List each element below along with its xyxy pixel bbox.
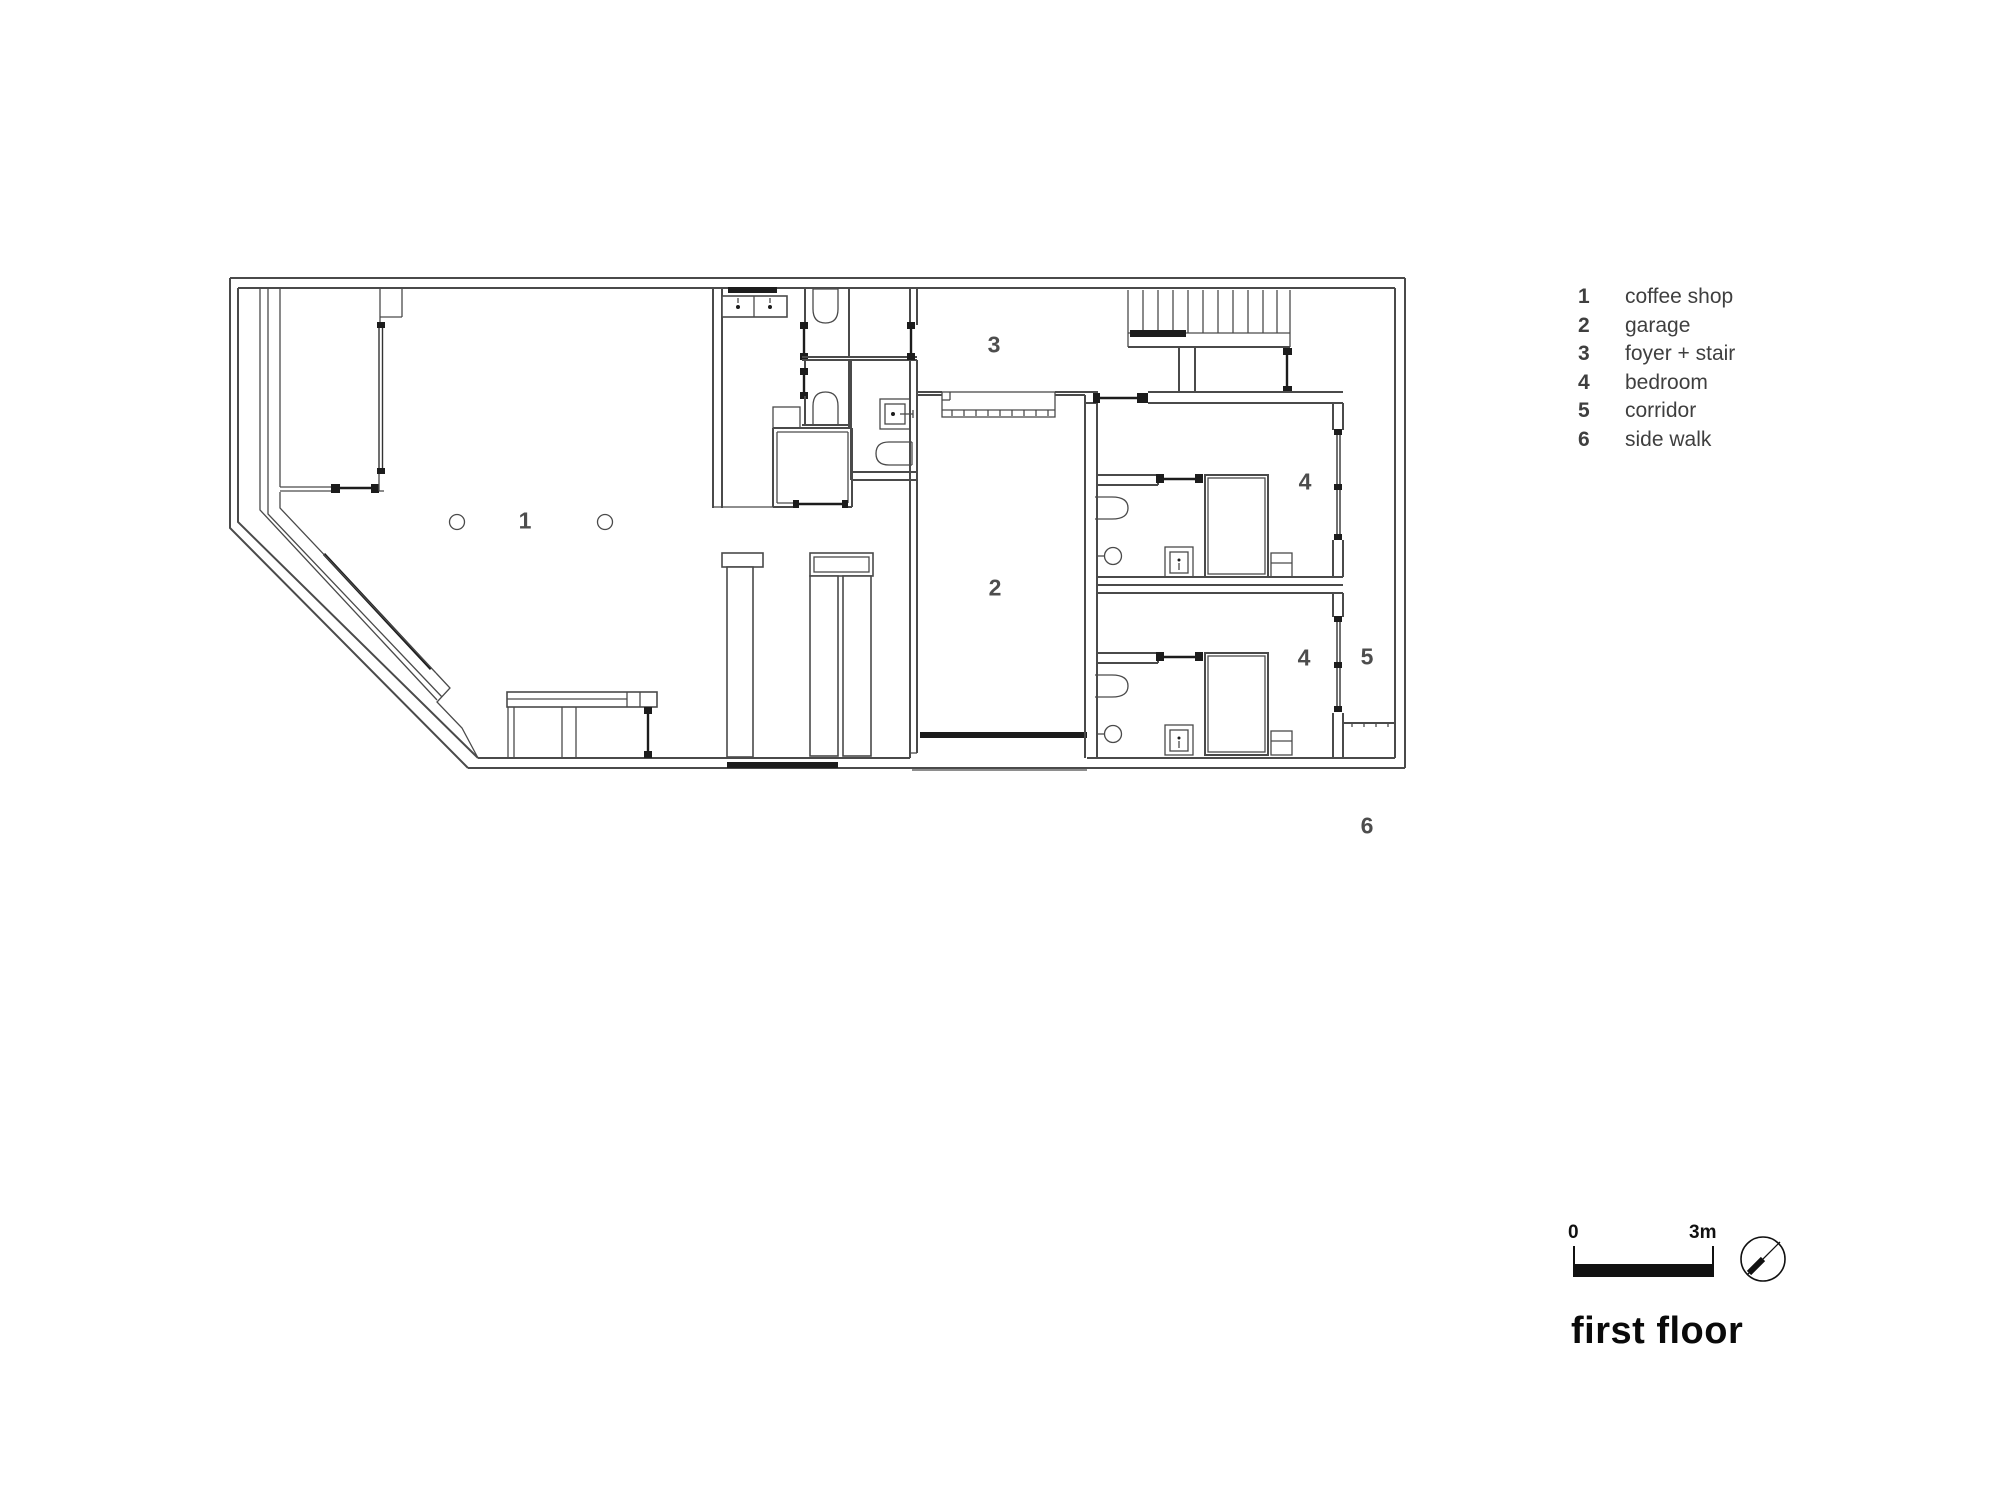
scale-end-label: 3m xyxy=(1689,1222,1716,1244)
legend: 1 coffee shop 2 garage 3 foyer + stair 4… xyxy=(1578,283,1735,455)
garage xyxy=(907,288,1087,758)
legend-item: 3 foyer + stair xyxy=(1578,340,1735,369)
garage-door xyxy=(920,732,1087,738)
toilet-icon xyxy=(813,392,838,425)
bed-icon xyxy=(1205,653,1268,755)
bedroom-block-walls xyxy=(1085,392,1343,758)
shower-icon xyxy=(1165,547,1193,577)
drawing-sheet: 1 2 3 4 4 5 6 1 coffee shop 2 garage 3 f… xyxy=(0,0,2000,1500)
legend-item-label: bedroom xyxy=(1625,369,1708,398)
bed-icon xyxy=(1205,475,1268,577)
room-label-bedroom-upper: 4 xyxy=(1299,469,1312,496)
staircase xyxy=(1128,290,1292,393)
bathtub-icon xyxy=(876,442,912,465)
north-arrow-icon xyxy=(1738,1234,1788,1284)
sink-icon xyxy=(880,399,913,429)
legend-item-number: 5 xyxy=(1578,397,1625,426)
legend-item-label: garage xyxy=(1625,312,1690,341)
drawing-title: first floor xyxy=(1571,1310,1743,1353)
angled-glazing xyxy=(260,288,478,758)
scale-bar-fill xyxy=(1573,1264,1714,1277)
legend-item-number: 1 xyxy=(1578,283,1625,312)
toilet-icon xyxy=(813,289,838,323)
entry-steps xyxy=(918,392,1085,417)
corridor-steps xyxy=(1343,723,1395,727)
bedroom-1 xyxy=(1095,474,1292,577)
room-label-coffee-shop: 1 xyxy=(519,508,532,535)
bedroom-2 xyxy=(1095,652,1292,755)
legend-item-label: corridor xyxy=(1625,397,1696,426)
legend-item: 2 garage xyxy=(1578,312,1735,341)
legend-item: 1 coffee shop xyxy=(1578,283,1735,312)
sink-counter xyxy=(722,296,787,317)
toilet-icon xyxy=(1095,675,1128,697)
legend-item-label: side walk xyxy=(1625,426,1711,455)
legend-item-label: foyer + stair xyxy=(1625,340,1735,369)
toilet-icon xyxy=(1095,497,1128,519)
legend-item: 6 side walk xyxy=(1578,426,1735,455)
legend-item-number: 6 xyxy=(1578,426,1625,455)
basin-icon xyxy=(1097,548,1122,565)
room-label-corridor: 5 xyxy=(1361,644,1374,671)
legend-item: 5 corridor xyxy=(1578,397,1735,426)
bench-seat xyxy=(507,692,657,758)
legend-item-label: coffee shop xyxy=(1625,283,1733,312)
shower-icon xyxy=(1165,725,1193,755)
legend-item: 4 bedroom xyxy=(1578,369,1735,398)
entry-recess xyxy=(380,288,402,327)
booth-tables xyxy=(722,553,873,768)
basin-icon xyxy=(1097,726,1122,743)
bathroom-block xyxy=(713,287,917,508)
legend-item-number: 2 xyxy=(1578,312,1625,341)
scale-start-label: 0 xyxy=(1568,1222,1579,1244)
room-label-garage: 2 xyxy=(989,575,1002,602)
room-label-side-walk: 6 xyxy=(1361,813,1374,840)
vestibule xyxy=(280,288,385,493)
room-label-foyer-stair: 3 xyxy=(988,332,1001,359)
legend-item-number: 3 xyxy=(1578,340,1625,369)
nightstand xyxy=(1271,553,1292,577)
legend-item-number: 4 xyxy=(1578,369,1625,398)
nightstand xyxy=(1271,731,1292,755)
room-label-bedroom-lower: 4 xyxy=(1298,645,1311,672)
